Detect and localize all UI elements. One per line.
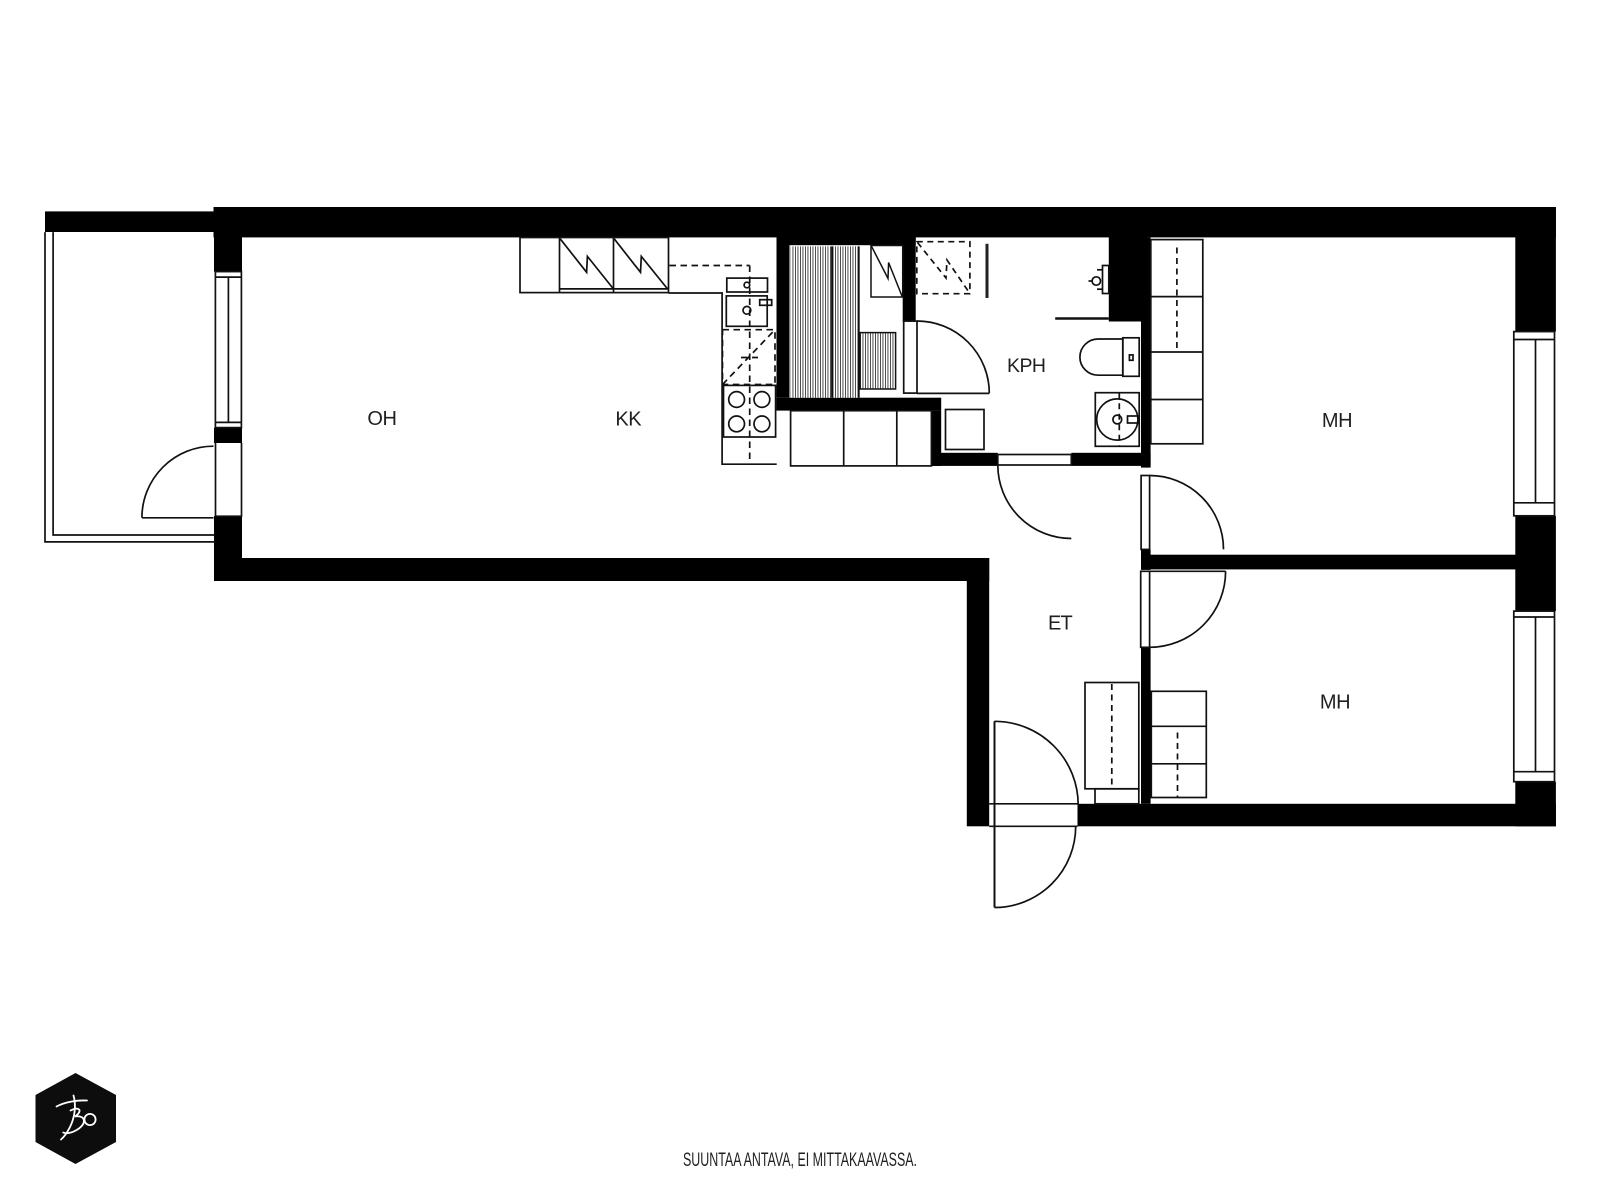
svg-text:KK: KK (615, 409, 642, 431)
svg-text:OH: OH (367, 408, 396, 430)
svg-text:MH: MH (1322, 410, 1352, 432)
svg-text:KPH: KPH (1007, 355, 1045, 377)
svg-text:SUUNTAA ANTAVA, EI MITTAKAAVAS: SUUNTAA ANTAVA, EI MITTAKAAVASSA. (683, 1150, 917, 1171)
svg-text:ET: ET (1048, 613, 1073, 635)
svg-text:MH: MH (1320, 692, 1350, 714)
